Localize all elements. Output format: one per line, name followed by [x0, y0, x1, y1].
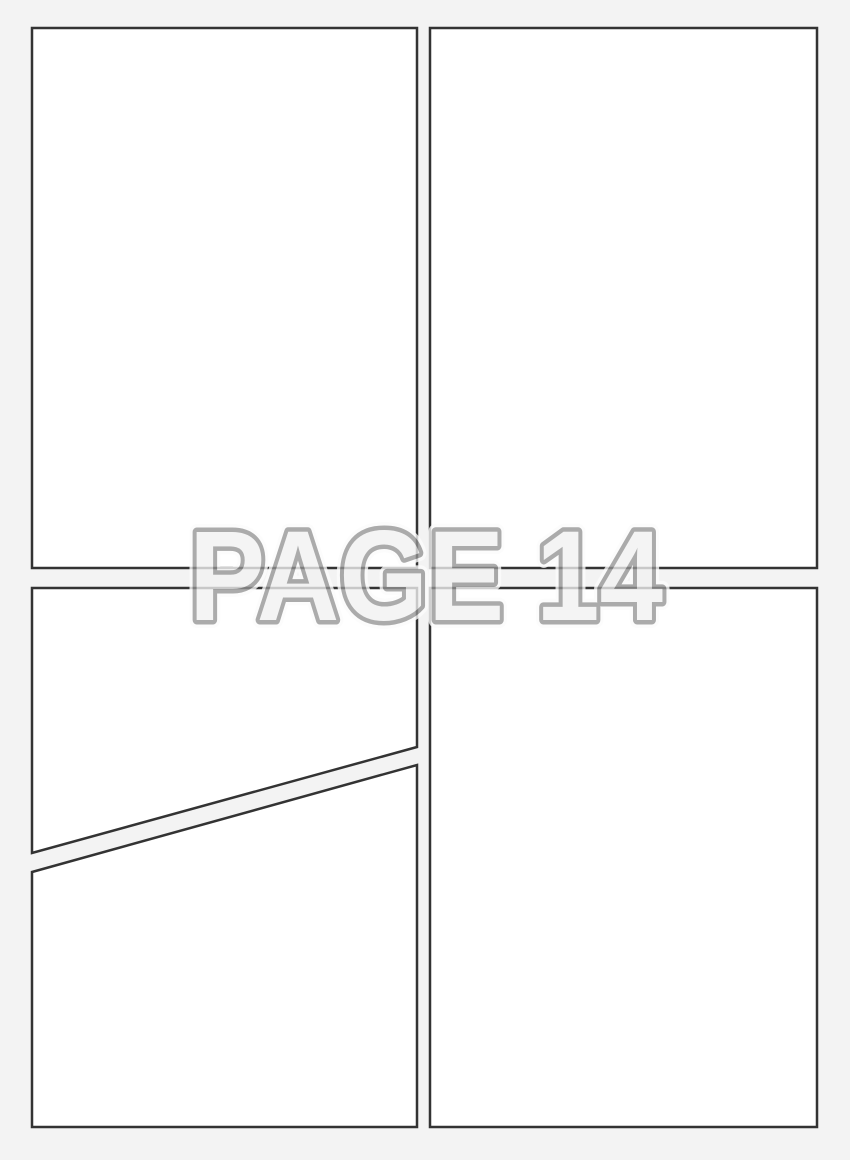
page-number-text: PAGE 14 [189, 505, 663, 648]
comic-page-template: PAGE 14 PAGE 14 PAGE 14 [0, 0, 850, 1160]
panel-top-left [32, 28, 417, 568]
panel-top-right [430, 28, 817, 568]
panel-bottom-right [430, 588, 817, 1127]
page-number-label: PAGE 14 PAGE 14 PAGE 14 [189, 505, 663, 648]
comic-page-canvas: PAGE 14 PAGE 14 PAGE 14 [0, 0, 850, 1160]
